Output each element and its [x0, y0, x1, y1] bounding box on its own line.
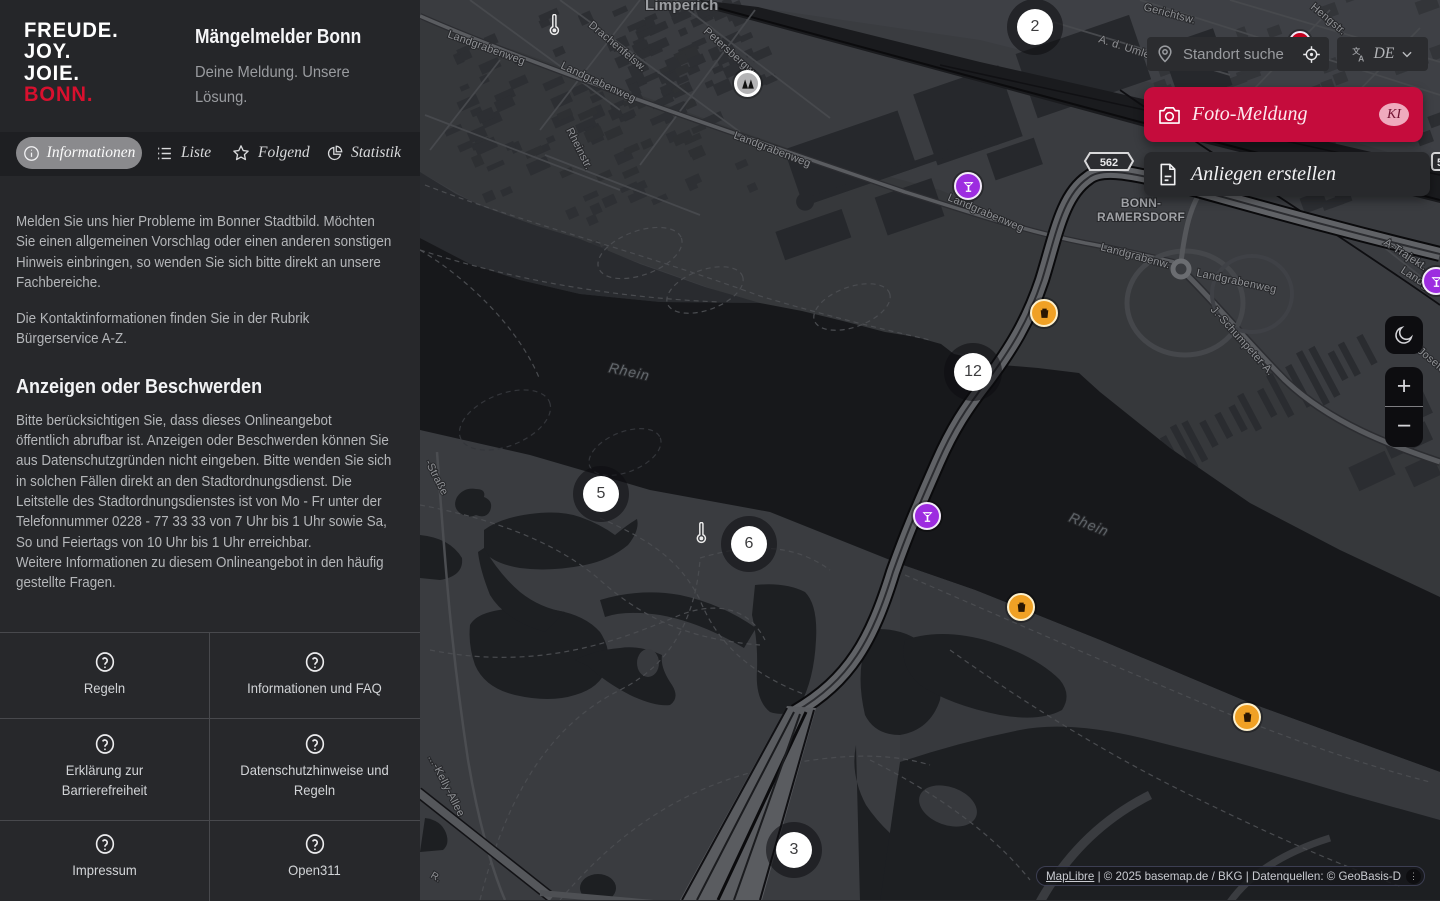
svg-text:A: A [1358, 53, 1364, 62]
svg-text:562: 562 [1100, 157, 1118, 169]
svg-text:RAMERSDORF: RAMERSDORF [1097, 210, 1185, 224]
svg-text:BONN-: BONN- [1121, 196, 1161, 210]
svg-text:Limperich: Limperich [645, 0, 718, 14]
